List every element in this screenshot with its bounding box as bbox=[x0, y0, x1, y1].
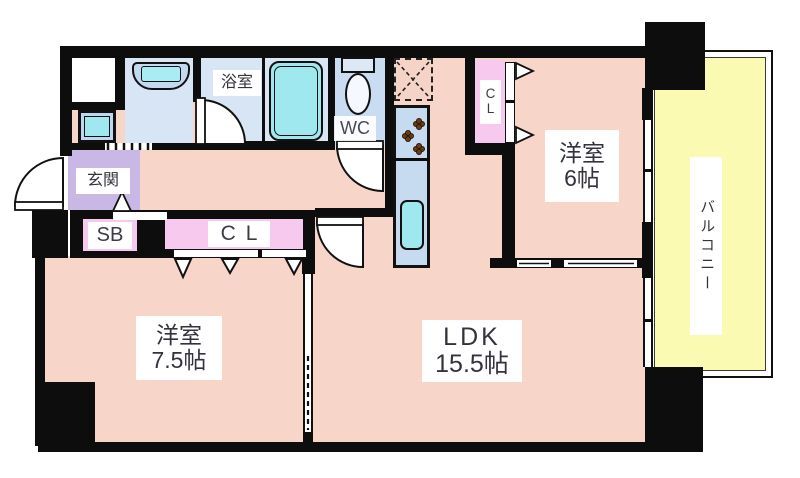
washroom-door-track bbox=[105, 143, 152, 150]
hall-closet-label: CL bbox=[208, 221, 270, 247]
shoe-box-label: SB bbox=[88, 222, 132, 249]
bathroom-label: 浴室 bbox=[213, 70, 261, 96]
refrigerator-space-cross bbox=[397, 62, 429, 97]
closet-hanger-triangles bbox=[175, 259, 302, 277]
living-label: LDK 15.5帖 bbox=[422, 320, 522, 382]
bedroom-west-label: 洋室 7.5帖 bbox=[136, 316, 222, 380]
floor-plan: 浴室 WC 玄関 SB CL C L 洋室 6帖 洋室 7.5帖 LDK 15.… bbox=[0, 0, 800, 478]
bathroom-door-swing bbox=[196, 98, 245, 144]
entrance-door-swing bbox=[15, 158, 63, 210]
closet-folding-door-arrows bbox=[516, 63, 533, 143]
bedroom-closet-label: C L bbox=[480, 80, 501, 124]
entrance-label: 玄関 bbox=[76, 168, 130, 194]
stove-burners bbox=[402, 118, 424, 154]
entrance-step-triangle bbox=[113, 192, 131, 211]
ldk-door-swing bbox=[317, 217, 363, 267]
bedroom-east-label: 洋室 6帖 bbox=[545, 130, 619, 202]
toilet-door-swing bbox=[337, 141, 383, 191]
balcony-label: バルコニー bbox=[690, 157, 722, 335]
toilet-label: WC bbox=[334, 116, 376, 141]
